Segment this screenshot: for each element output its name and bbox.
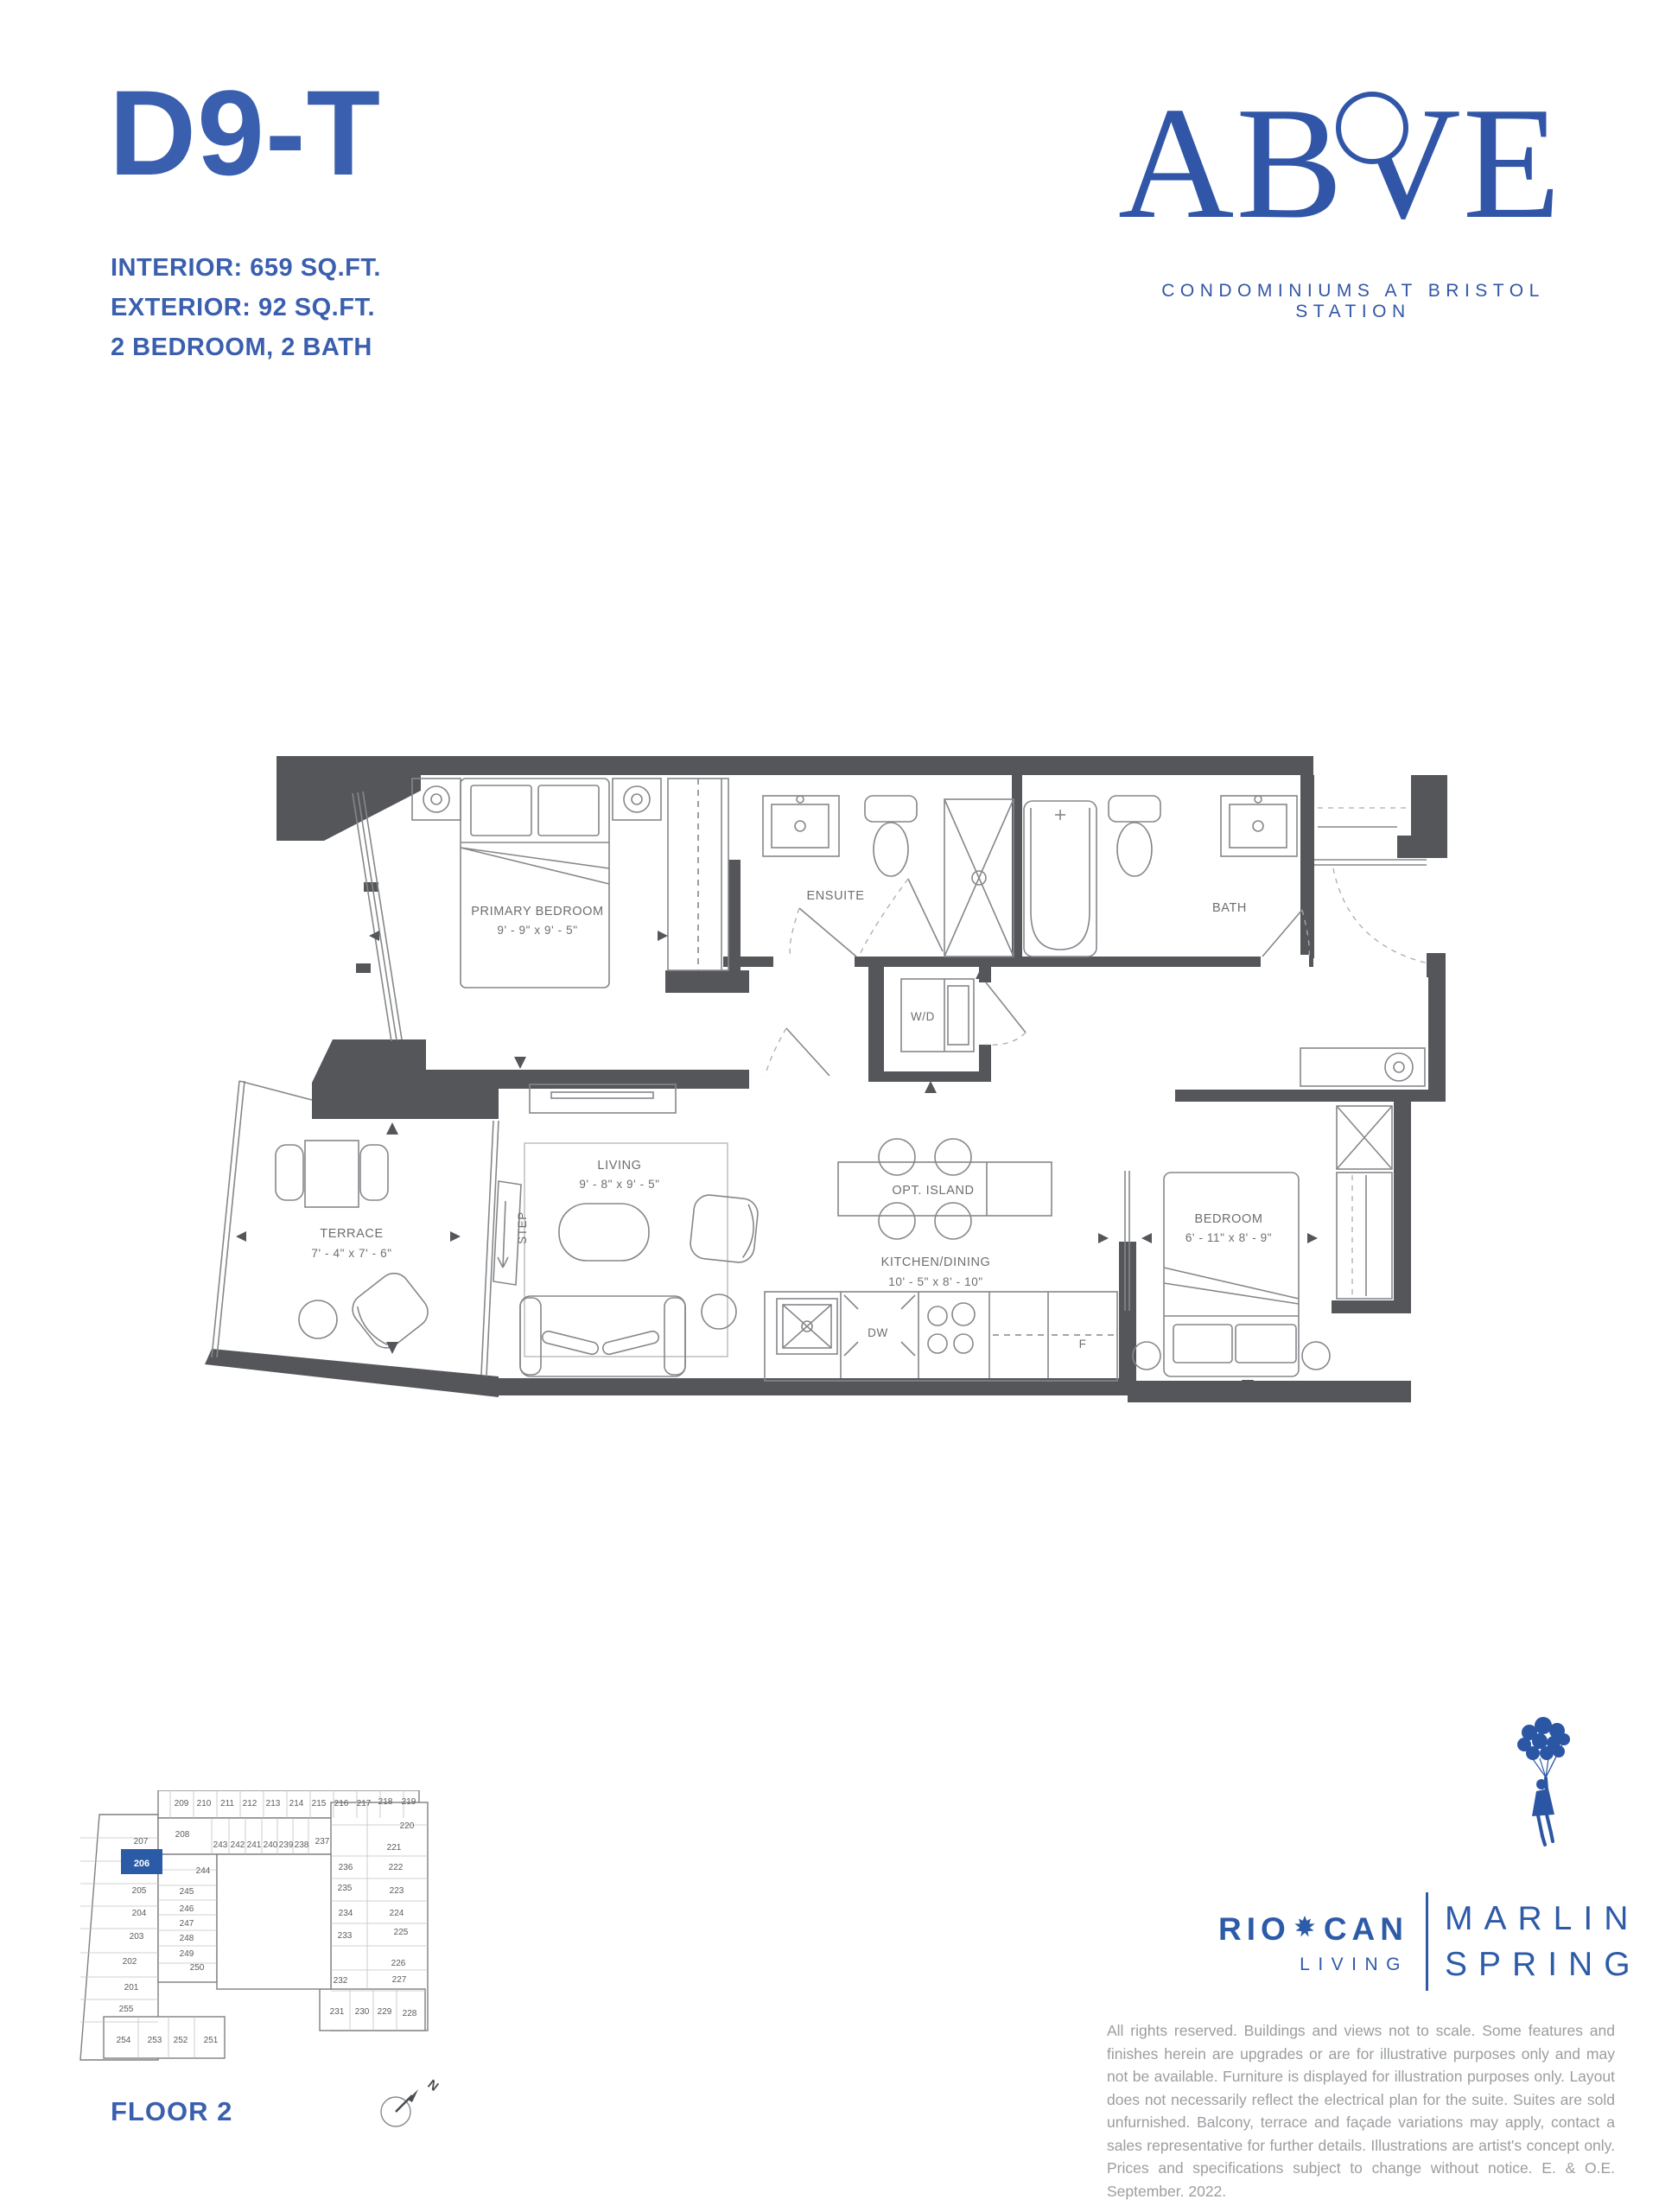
keyplan-unit-number: 215 bbox=[312, 1799, 327, 1808]
keyplan-unit-number: 246 bbox=[180, 1904, 194, 1914]
keyplan-unit-number: 255 bbox=[119, 2005, 134, 2014]
keyplan-unit-number: 240 bbox=[264, 1840, 278, 1850]
keyplan-unit-number: 245 bbox=[180, 1887, 194, 1897]
above-logo: ABVE CONDOMINIUMS AT BRISTOL STATION bbox=[1118, 83, 1588, 308]
riocan-text-left: RIO bbox=[1218, 1911, 1291, 1948]
marlin-line1: MARLIN bbox=[1445, 1896, 1635, 1942]
label-bedroom: BEDROOM bbox=[1194, 1212, 1262, 1226]
label-terrace: TERRACE bbox=[320, 1227, 384, 1241]
keyplan-unit-number: 223 bbox=[390, 1886, 404, 1896]
keyplan-unit-number: 238 bbox=[295, 1840, 309, 1850]
keyplan-unit-number: 239 bbox=[279, 1840, 294, 1850]
keyplan-unit-number: 212 bbox=[243, 1799, 257, 1808]
keyplan-unit-number: 209 bbox=[175, 1799, 189, 1808]
keyplan-unit-number: 201 bbox=[124, 1983, 139, 1993]
spec-exterior: EXTERIOR: 92 SQ.FT. bbox=[111, 288, 381, 327]
keyplan-unit-number: 219 bbox=[402, 1797, 416, 1807]
walls bbox=[205, 756, 1447, 1402]
keyplan-unit-number: 208 bbox=[175, 1830, 190, 1840]
riocan-logo: RIO CAN LIVING bbox=[1168, 1911, 1408, 1975]
keyplan-outline bbox=[80, 1790, 428, 2060]
keyplan-unit-number: 224 bbox=[390, 1909, 404, 1918]
keyplan-unit-number: 226 bbox=[391, 1959, 406, 1968]
label-dw: DW bbox=[868, 1326, 888, 1339]
keyplan-unit-number: 241 bbox=[247, 1840, 262, 1850]
keyplan-unit-number: 229 bbox=[378, 2007, 392, 2017]
keyplan-unit-number: 220 bbox=[400, 1821, 415, 1831]
unit-specs: INTERIOR: 659 SQ.FT. EXTERIOR: 92 SQ.FT.… bbox=[111, 248, 381, 367]
keyplan-unit-number: 214 bbox=[289, 1799, 304, 1808]
keyplan-unit-number: 228 bbox=[403, 2009, 417, 2018]
keyplan-unit-number: 235 bbox=[338, 1884, 353, 1893]
label-bath: BATH bbox=[1212, 901, 1247, 915]
primary-bedroom-furniture bbox=[412, 779, 728, 988]
label-wd: W/D bbox=[911, 1010, 935, 1023]
keyplan-unit-number: 216 bbox=[334, 1799, 349, 1808]
label-kitchen-dims: 10' - 5" x 8' - 10" bbox=[888, 1275, 982, 1288]
label-primary-bedroom: PRIMARY BEDROOM bbox=[471, 905, 604, 918]
label-living: LIVING bbox=[597, 1159, 641, 1173]
compass-north-label: N bbox=[425, 2077, 442, 2094]
keyplan-unit-number: 254 bbox=[117, 2036, 131, 2045]
label-primary-bedroom-dims: 9' - 9" x 9' - 5" bbox=[497, 924, 577, 937]
keyplan-unit-number: 232 bbox=[334, 1976, 348, 1986]
living-furniture bbox=[520, 1084, 760, 1376]
wordmark-left: AB bbox=[1118, 83, 1344, 244]
keyplan-unit-number: 210 bbox=[197, 1799, 212, 1808]
keyplan-unit-number: 237 bbox=[315, 1837, 330, 1847]
logo-divider bbox=[1426, 1892, 1428, 1991]
maple-leaf-icon bbox=[1293, 1916, 1317, 1940]
keyplan-unit-number: 203 bbox=[130, 1932, 144, 1942]
keyplan-unit-number: 204 bbox=[132, 1909, 147, 1918]
keyplan-unit-number: 227 bbox=[392, 1975, 407, 1985]
keyplan-unit-number: 221 bbox=[387, 1843, 402, 1853]
marlin-line2: SPRING bbox=[1445, 1942, 1635, 1987]
keyplan-unit-number: 234 bbox=[339, 1909, 353, 1918]
keyplan-unit-number: 206 bbox=[134, 1859, 149, 1869]
keyplan-unit-number: 243 bbox=[213, 1840, 228, 1850]
keyplan-unit-number: 236 bbox=[339, 1863, 353, 1872]
label-terrace-dims: 7' - 4" x 7' - 6" bbox=[311, 1247, 391, 1260]
label-living-dims: 9' - 8" x 9' - 5" bbox=[579, 1178, 659, 1191]
marlin-spring-logo: MARLIN SPRING bbox=[1445, 1896, 1635, 1987]
brochure-page: D9-T INTERIOR: 659 SQ.FT. EXTERIOR: 92 S… bbox=[0, 0, 1659, 2212]
balloon-girl-icon bbox=[1505, 1713, 1585, 1860]
legal-disclaimer: All rights reserved. Buildings and views… bbox=[1107, 2019, 1615, 2202]
keyplan-unit-number: 230 bbox=[355, 2007, 370, 2017]
ensuite-fixtures bbox=[763, 796, 1014, 957]
label-fridge: F bbox=[1079, 1338, 1087, 1351]
keyplan-unit-number: 225 bbox=[394, 1928, 409, 1937]
keyplan-unit-number: 247 bbox=[180, 1919, 194, 1929]
keyplan-unit-number: 244 bbox=[196, 1866, 211, 1876]
label-bedroom-dims: 6' - 11" x 8' - 9" bbox=[1185, 1231, 1272, 1244]
riocan-text-right: CAN bbox=[1324, 1911, 1408, 1948]
keyplan-unit-number: 222 bbox=[389, 1863, 404, 1872]
keyplan-unit-number: 205 bbox=[132, 1886, 147, 1896]
keyplan-unit-number: 231 bbox=[330, 2007, 345, 2017]
keyplan-unit-number: 252 bbox=[174, 2036, 188, 2045]
keyplan-unit-number: 207 bbox=[134, 1837, 149, 1847]
keyplan-unit-number: 251 bbox=[204, 2036, 219, 2045]
label-kitchen: KITCHEN/DINING bbox=[881, 1255, 991, 1269]
floorplan: PRIMARY BEDROOM 9' - 9" x 9' - 5" ENSUIT… bbox=[194, 739, 1473, 1439]
logo-o-circle-icon bbox=[1336, 92, 1408, 164]
keyplan-unit-number: 211 bbox=[220, 1799, 234, 1808]
keyplan: 2092102112122132142152162172182192082432… bbox=[73, 1790, 445, 2075]
keyplan-unit-number: 202 bbox=[123, 1957, 137, 1967]
compass-icon: N bbox=[370, 2067, 474, 2139]
label-ensuite: ENSUITE bbox=[806, 889, 864, 903]
unit-name: D9-T bbox=[109, 73, 381, 194]
riocan-living: LIVING bbox=[1168, 1955, 1408, 1975]
keyplan-unit-number: 233 bbox=[338, 1931, 353, 1941]
label-step: STEP bbox=[516, 1211, 529, 1244]
keyplan-unit-number: 250 bbox=[190, 1963, 205, 1973]
bath-fixtures bbox=[1024, 796, 1297, 957]
keyplan-unit-number: 242 bbox=[231, 1840, 245, 1850]
floor-label: FLOOR 2 bbox=[111, 2096, 232, 2127]
keyplan-unit-number: 253 bbox=[148, 2036, 162, 2045]
keyplan-unit-number: 218 bbox=[378, 1797, 393, 1807]
keyplan-unit-number: 217 bbox=[357, 1799, 372, 1808]
keyplan-unit-number: 213 bbox=[266, 1799, 281, 1808]
keyplan-unit-number: 248 bbox=[180, 1934, 194, 1943]
spec-interior: INTERIOR: 659 SQ.FT. bbox=[111, 248, 381, 288]
spec-config: 2 BEDROOM, 2 BATH bbox=[111, 327, 381, 367]
brand-tagline: CONDOMINIUMS AT BRISTOL STATION bbox=[1118, 281, 1588, 322]
label-opt-island: OPT. ISLAND bbox=[892, 1184, 974, 1198]
bedroom-furniture bbox=[1133, 1173, 1392, 1376]
keyplan-unit-number: 249 bbox=[180, 1949, 194, 1959]
